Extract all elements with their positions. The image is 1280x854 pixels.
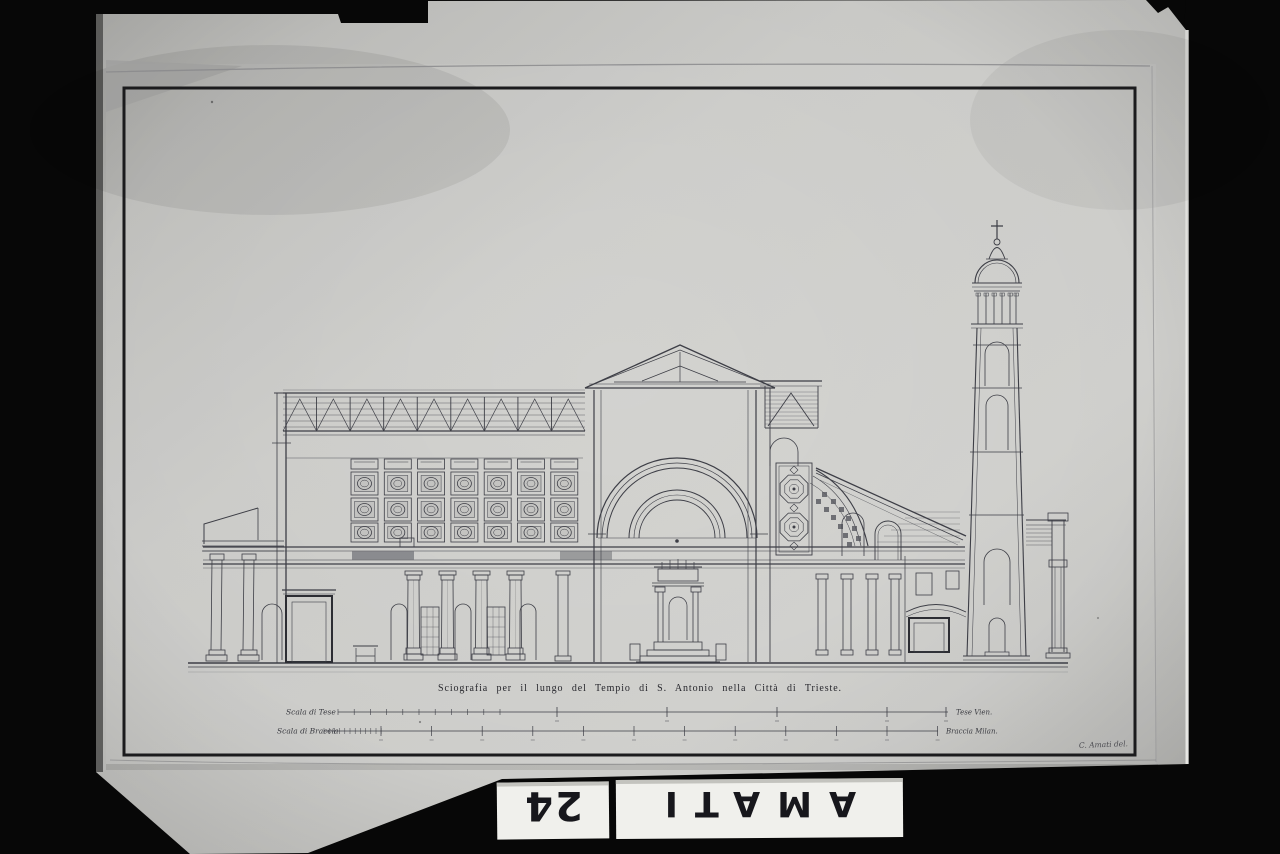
archive-number-text: 24 — [523, 782, 583, 828]
author-signature: C. Amati del. — [1079, 739, 1128, 750]
scale-unit-braccia: Braccia Milan. — [945, 728, 998, 736]
drawing-caption: Sciografia per il lungo del Tempio di S.… — [438, 683, 842, 694]
scale-label-tese: Scala di Tese — [286, 708, 336, 717]
scale-label-braccia: Scala di Braccia — [277, 727, 339, 736]
archival-photograph: Sciografia per il lungo del Tempio di S.… — [0, 0, 1280, 854]
archive-name-text: AMATI — [648, 783, 856, 823]
archival-photo-stage: Sciografia per il lungo del Tempio di S.… — [0, 0, 1280, 854]
archive-card-name: AMATI — [616, 778, 903, 839]
archive-card-number: 24 — [497, 781, 610, 839]
scale-unit-tese: Tese Vien. — [956, 709, 992, 717]
